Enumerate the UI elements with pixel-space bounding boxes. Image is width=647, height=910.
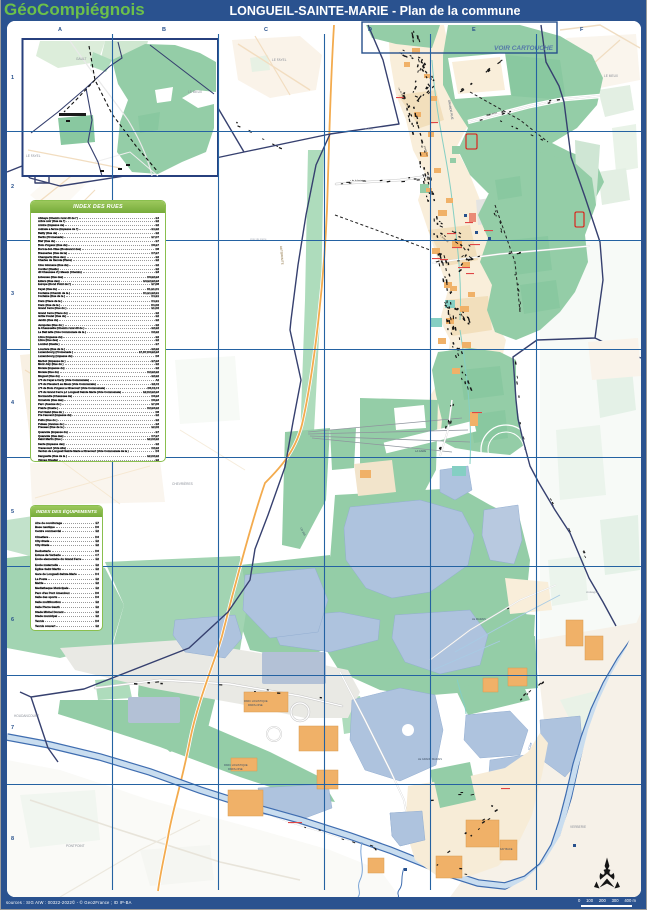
svg-text:A: A (58, 27, 62, 33)
svg-text:PARIS-OISE: PARIS-OISE (228, 767, 243, 771)
svg-text:LE FAYEL: LE FAYEL (272, 58, 287, 62)
svg-text:VOIR CARTOUCHE: VOIR CARTOUCHE (494, 45, 554, 52)
svg-text:8: 8 (11, 836, 14, 842)
svg-text:croisogne: croisogne (586, 590, 599, 594)
svg-text:E: E (472, 27, 476, 33)
svg-text:le fayel: le fayel (365, 127, 374, 131)
svg-text:B: B (162, 27, 166, 33)
svg-text:2: 2 (11, 184, 14, 190)
svg-text:LE MARAIS: LE MARAIS (472, 617, 486, 621)
svg-text:1: 1 (11, 75, 14, 81)
svg-text:CHEVRIÈRES: CHEVRIÈRES (172, 481, 193, 486)
svg-text:3: 3 (11, 291, 14, 297)
svg-text:C: C (264, 27, 268, 33)
svg-text:VERBERIE: VERBERIE (570, 825, 586, 829)
svg-text:D: D (368, 27, 372, 33)
svg-text:PARC LOGISTIQUE: PARC LOGISTIQUE (244, 699, 268, 703)
svg-text:LE MEUX: LE MEUX (188, 90, 203, 94)
svg-text:r. de la fontaine: r. de la fontaine (350, 179, 366, 182)
svg-text:LE FAYEL: LE FAYEL (26, 154, 41, 158)
svg-text:PARIS-OISE: PARIS-OISE (248, 703, 263, 707)
svg-text:HOUDANCOURT: HOUDANCOURT (14, 714, 39, 718)
svg-text:6: 6 (11, 617, 14, 623)
svg-text:PARC LOGISTIQUE: PARC LOGISTIQUE (224, 763, 248, 767)
svg-text:PONTPOINT: PONTPOINT (66, 844, 85, 848)
svg-text:LE MEUX: LE MEUX (604, 74, 619, 78)
svg-text:GAULT: GAULT (76, 57, 86, 61)
svg-text:LA GARE: LA GARE (415, 449, 426, 453)
svg-text:FAY BACE: FAY BACE (500, 847, 513, 851)
svg-text:7: 7 (11, 725, 14, 731)
svg-text:5: 5 (11, 509, 14, 515)
